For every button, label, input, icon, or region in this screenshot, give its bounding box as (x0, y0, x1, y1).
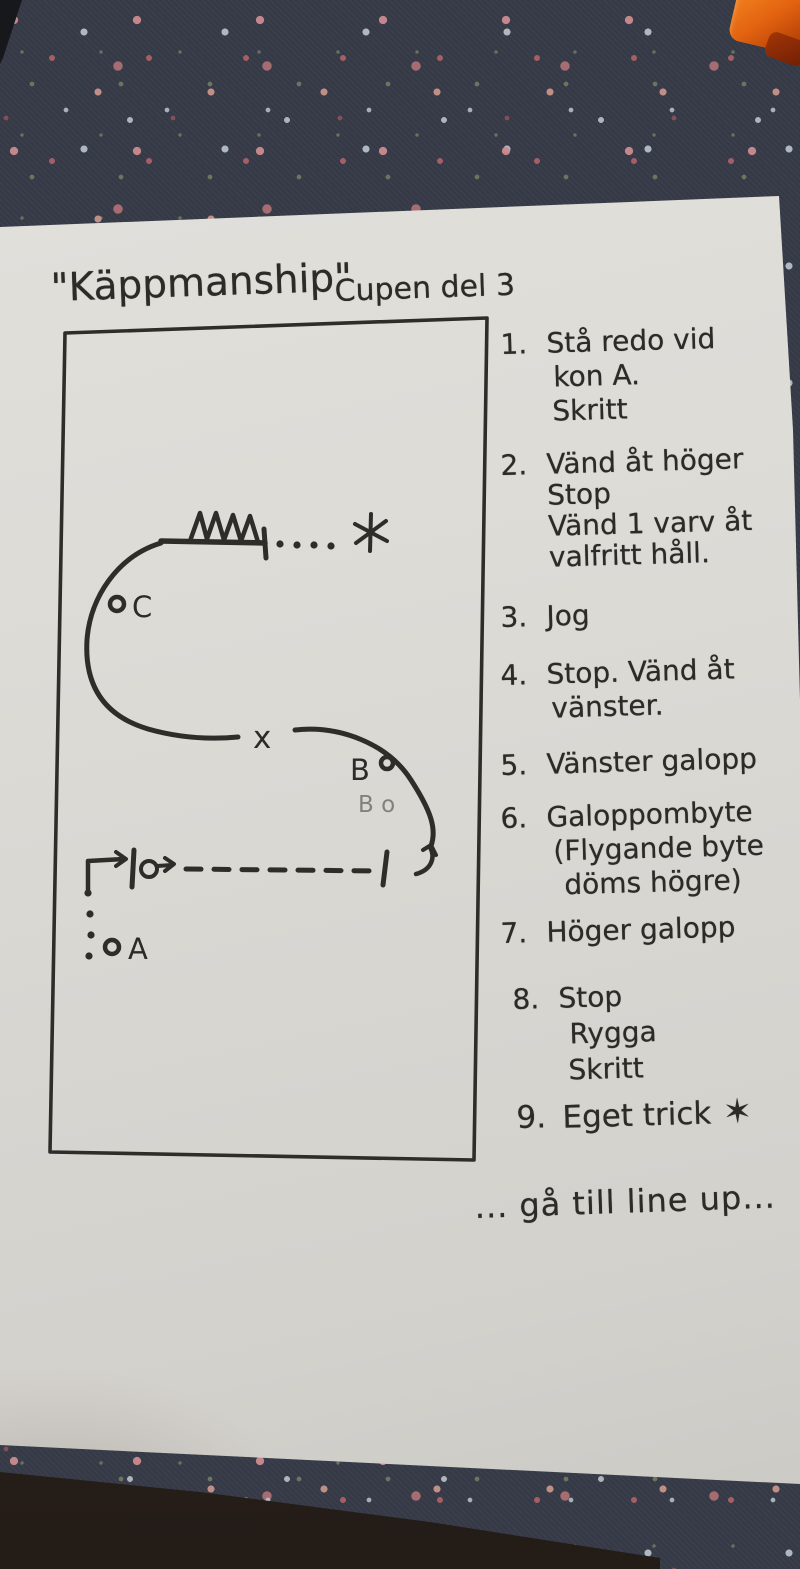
serpentine-right-curve (295, 729, 433, 846)
item-number: 1. (500, 327, 539, 430)
page-subtitle: Cupen del 3 (334, 268, 516, 309)
item-line: Stop (558, 978, 656, 1017)
item-number: 3. (500, 600, 537, 635)
cone-a-circle (105, 940, 119, 954)
item-line: kon A. (553, 356, 717, 395)
item-number: 5. (500, 748, 537, 783)
page-title: "Käppmanship" (50, 255, 353, 310)
item-line: Jog (546, 599, 590, 634)
serpentine-left-curve (87, 543, 238, 738)
instruction-item-7: 7. Höger galopp (500, 910, 736, 951)
cone-b-circle (381, 757, 393, 769)
rail-baseline (161, 541, 265, 543)
lineup-footer: ... gå till line up... (474, 1177, 776, 1225)
instruction-item-3: 3. Jog (500, 599, 590, 635)
start-bar (132, 850, 134, 887)
instruction-item-1: 1. Stå redo vid kon A. Skritt (500, 322, 718, 430)
item-line: döms högre) (564, 863, 765, 903)
item-line: Vänd 1 varv åt (548, 505, 753, 542)
instruction-item-6: 6. Galoppombyte (Flygande byte döms högr… (500, 795, 765, 904)
cone-b-label: B (350, 753, 370, 787)
instruction-item-5: 5. Vänster galopp (500, 742, 757, 783)
instruction-item-4: 4. Stop. Vänd åt vänster. (500, 652, 736, 727)
trick-star-icon: ✶ (723, 1091, 753, 1132)
rail-end-tick (264, 529, 266, 558)
item-line: Stå redo vid (546, 322, 716, 361)
item-number: 8. (512, 981, 551, 1090)
item-line: valfritt håll. (549, 536, 754, 573)
pencil-ghost-label: B o (358, 792, 395, 818)
item-line: Rygga (569, 1014, 657, 1052)
dash-end-tick (383, 852, 387, 885)
turn-loop-symbol (141, 861, 157, 877)
crossover-x-label: x (253, 720, 271, 756)
item-line: Vänster galopp (546, 742, 757, 782)
course-diagram: C x B B o A (40, 310, 500, 1180)
cone-a-label: A (128, 932, 148, 966)
item-line: Höger galopp (546, 910, 736, 949)
star-marker (355, 514, 387, 551)
item-number: 9. (516, 1100, 553, 1136)
instruction-item-8: 8. Stop Rygga Skritt (512, 978, 658, 1090)
item-line: Vänd åt höger (546, 443, 751, 480)
cone-c-label: C (132, 590, 152, 624)
item-number: 2. (500, 449, 539, 574)
instruction-item-9: 9. Eget trick✶ (516, 1094, 752, 1136)
zigzag-fence (190, 513, 258, 542)
item-number: 6. (500, 801, 539, 904)
photo-scene: "Käppmanship" Cupen del 3 C x B (0, 0, 800, 1569)
item-number: 7. (500, 916, 537, 951)
instruction-item-2: 2. Vänd åt höger Stop Vänd 1 varv åt val… (500, 443, 753, 574)
item-number: 4. (500, 658, 538, 727)
paper-sheet: "Käppmanship" Cupen del 3 C x B (0, 0, 800, 1569)
cone-c-circle (110, 597, 124, 611)
item-line: Skritt (568, 1050, 658, 1088)
item-line: Skritt (552, 390, 718, 429)
canter-dashed-path (186, 869, 381, 871)
item-line: Stop. Vänd åt (546, 652, 735, 691)
item-line: vänster. (551, 686, 736, 725)
walk-dotted-path (276, 540, 334, 549)
walk-dotted-column (84, 889, 94, 959)
item-line: Eget trick (562, 1096, 712, 1136)
